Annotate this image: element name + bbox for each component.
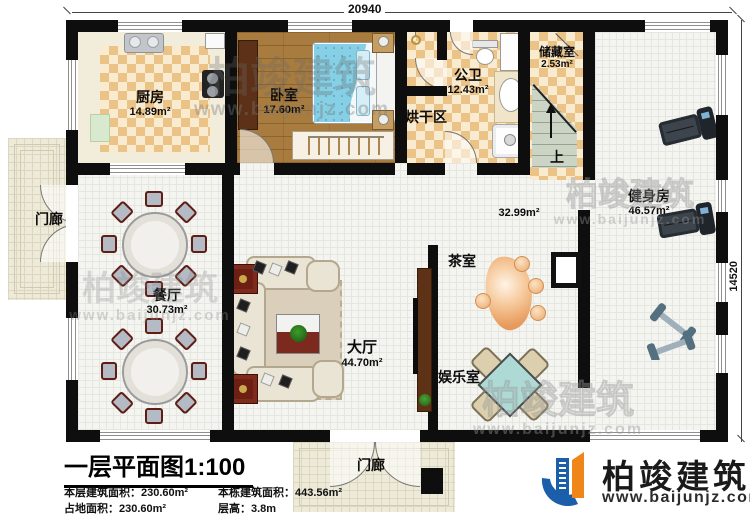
dining-table-1-top xyxy=(122,212,188,278)
floor-plan-canvas: 厨房 14.89m² 卧室 17.60m² 公卫 12.43m² 烘干区 储藏室… xyxy=(0,0,750,524)
stat-floor-area-value: 230.60m² xyxy=(141,487,188,499)
wall-h-bedroom xyxy=(274,163,395,175)
wall-bath-partition-v xyxy=(437,32,447,60)
bedroom-name: 卧室 xyxy=(264,88,305,104)
kitchen-sink-basin-right xyxy=(147,36,159,48)
opening-kitchen-dining xyxy=(110,163,185,175)
tv-screen xyxy=(413,298,418,374)
window-top-bedroom xyxy=(288,20,352,32)
dining-name: 餐厅 xyxy=(147,288,188,304)
window-right-2 xyxy=(716,180,728,212)
storage-label: 储藏室 2.53m² xyxy=(539,46,575,71)
dining-chair xyxy=(145,318,163,334)
stairs-arrow-head xyxy=(546,103,556,113)
bathroom-name: 公卫 xyxy=(448,68,489,84)
door-opening-porch-bottom xyxy=(330,430,420,442)
bedroom-wardrobe-tall xyxy=(238,40,258,130)
tea-room-label: 茶室 xyxy=(448,254,476,270)
stat-floor-area-label: 本层建筑面积： xyxy=(64,487,141,499)
wall-tea-gym xyxy=(578,210,590,388)
wall-h-bath-left xyxy=(407,163,445,175)
window-left-dining xyxy=(66,318,78,380)
dining-chair xyxy=(191,235,207,253)
drying-area-label: 烘干区 xyxy=(405,110,447,126)
hallway-area-label: 32.99m² xyxy=(499,207,540,219)
logo-building-icon xyxy=(534,446,596,508)
hall-area: 44.70m² xyxy=(342,357,383,369)
stat-height-label: 层高： xyxy=(218,503,251,515)
hall-label: 大厅 44.70m² xyxy=(342,340,383,369)
window-right-3 xyxy=(716,263,728,302)
stairs-up-label: 上 xyxy=(550,150,564,166)
tea-stool xyxy=(475,293,491,309)
bed-pillow-2 xyxy=(356,86,370,116)
window-bottom-gym xyxy=(590,430,700,442)
wall-bedroom-bath xyxy=(395,32,407,163)
dimension-line-top xyxy=(72,12,732,13)
storage-area: 2.53m² xyxy=(539,59,575,70)
stat-total-area: 本栋建筑面积：443.56m² xyxy=(218,484,342,500)
stat-footprint-label: 占地面积： xyxy=(64,503,119,515)
bathroom-area: 12.43m² xyxy=(448,84,489,96)
tea-stool xyxy=(528,278,544,294)
dining-chair xyxy=(145,408,163,424)
treadmill-1-belt xyxy=(658,113,703,146)
bedroom-area: 17.60m² xyxy=(264,104,305,116)
dining-chair xyxy=(191,362,207,380)
wall-stairs-gym xyxy=(583,32,595,180)
stat-total-area-value: 443.56m² xyxy=(295,487,342,499)
stove-burner-2 xyxy=(207,86,218,97)
gym-name: 健身房 xyxy=(628,189,670,205)
nightstand-lamp-bottom xyxy=(378,114,389,125)
dimension-tick xyxy=(729,7,737,15)
dimension-line-right xyxy=(741,20,742,442)
stat-footprint: 占地面积：230.60m² xyxy=(64,500,166,516)
dining-table-2 xyxy=(119,336,191,408)
tea-stool xyxy=(514,256,530,272)
nightstand-lamp-top xyxy=(378,36,389,47)
bathroom-label: 公卫 12.43m² xyxy=(448,68,489,96)
bedroom-label: 卧室 17.60m² xyxy=(264,88,305,116)
tea-stool xyxy=(530,305,546,321)
stat-total-area-label: 本栋建筑面积： xyxy=(218,487,295,499)
side-table-decor-bottom xyxy=(239,385,247,393)
door-opening-porch-left xyxy=(66,185,78,262)
wall-dining-hall xyxy=(222,163,234,430)
kitchen-sink-basin-left xyxy=(129,36,141,48)
storage-name: 储藏室 xyxy=(539,46,575,59)
wall-h-bath-right xyxy=(477,163,530,175)
clothes-hanger-icon xyxy=(411,35,421,45)
dumbbells-icon xyxy=(646,302,700,360)
porch-left-label: 门廊 xyxy=(35,212,63,228)
hall-name: 大厅 xyxy=(342,340,383,357)
plan-title: 一层平面图1:100 xyxy=(64,447,253,488)
kitchen-mat xyxy=(90,114,110,142)
mahjong-set xyxy=(474,349,546,421)
sofa-corner-top xyxy=(306,260,340,292)
kitchen-label: 厨房 14.89m² xyxy=(130,90,171,118)
kitchen-appliance xyxy=(205,33,225,49)
cabinet-plant xyxy=(419,394,431,406)
stat-footprint-value: 230.60m² xyxy=(119,503,166,515)
dining-table-2-top xyxy=(122,339,188,405)
dining-chair xyxy=(101,362,117,380)
dining-chair xyxy=(101,235,117,253)
window-bottom-dining xyxy=(100,430,210,442)
stat-floor-area: 本层建筑面积：230.60m² xyxy=(64,484,188,500)
window-top-kitchen xyxy=(118,20,182,32)
window-right-1 xyxy=(716,55,728,115)
porch-bottom-label: 门廊 xyxy=(357,458,385,474)
side-table-decor-top xyxy=(239,275,247,283)
toilet-bowl xyxy=(476,48,494,65)
window-top-gym xyxy=(645,20,710,32)
dimension-tick xyxy=(63,7,71,15)
stove-burner-1 xyxy=(207,73,218,84)
logo-url: www.baijunjz.com xyxy=(602,489,750,507)
bed-pillow-1 xyxy=(356,50,370,80)
toilet-tank xyxy=(472,40,498,48)
wall-bath-partition-h xyxy=(407,86,447,96)
window-right-4 xyxy=(716,335,728,373)
wall-kitchen-bedroom xyxy=(225,32,237,163)
stairs-arrow-shaft xyxy=(550,112,552,138)
dimension-right-value: 14520 xyxy=(728,258,740,295)
fireplace-niche xyxy=(551,252,581,288)
stat-height: 层高：3.8m xyxy=(218,500,276,516)
stat-height-value: 3.8m xyxy=(251,503,276,515)
wall-h-kitchen-left xyxy=(78,163,110,175)
wall-bath-stairs xyxy=(518,32,530,163)
dining-label: 餐厅 30.73m² xyxy=(147,288,188,316)
door-opening-bath-top xyxy=(450,20,473,32)
dining-table-1 xyxy=(119,209,191,281)
dining-area: 30.73m² xyxy=(147,304,188,316)
tv-cabinet xyxy=(417,268,432,412)
game-room-label: 娱乐室 xyxy=(438,370,480,386)
dining-chair xyxy=(145,191,163,207)
sofa-corner-bottom xyxy=(312,360,344,398)
window-left-kitchen xyxy=(66,60,78,130)
wardrobe-hangers xyxy=(308,136,384,155)
shower-head xyxy=(504,134,516,146)
plant xyxy=(290,325,307,342)
gym-label: 健身房 46.57m² xyxy=(628,189,670,217)
kitchen-area: 14.89m² xyxy=(130,106,171,118)
kitchen-name: 厨房 xyxy=(130,90,171,106)
logo xyxy=(534,446,596,513)
gym-area: 46.57m² xyxy=(628,205,670,217)
porch-pillar xyxy=(421,468,443,494)
dimension-top-value: 20940 xyxy=(344,2,385,16)
